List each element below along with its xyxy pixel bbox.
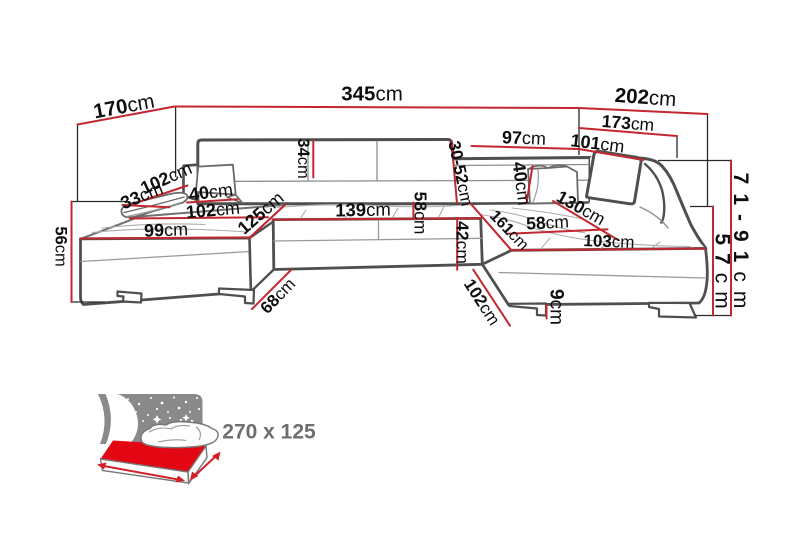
- svg-text:58cm: 58cm: [526, 211, 570, 233]
- svg-text:345cm: 345cm: [341, 83, 403, 106]
- svg-text:97cm: 97cm: [502, 127, 547, 149]
- svg-text:139cm: 139cm: [335, 199, 391, 221]
- svg-text:34cm: 34cm: [294, 138, 312, 178]
- svg-text:56cm: 56cm: [52, 226, 70, 266]
- svg-text:58cm: 58cm: [411, 192, 431, 235]
- svg-text:99cm: 99cm: [144, 219, 189, 241]
- svg-text:270 x 125: 270 x 125: [222, 421, 316, 444]
- svg-text:103cm: 103cm: [583, 231, 635, 252]
- svg-text:202cm: 202cm: [614, 84, 677, 111]
- svg-text:71-91cm: 71-91cm: [729, 173, 752, 318]
- svg-text:9cm: 9cm: [546, 289, 567, 325]
- svg-text:42cm: 42cm: [453, 221, 473, 264]
- svg-text:173cm: 173cm: [601, 111, 655, 135]
